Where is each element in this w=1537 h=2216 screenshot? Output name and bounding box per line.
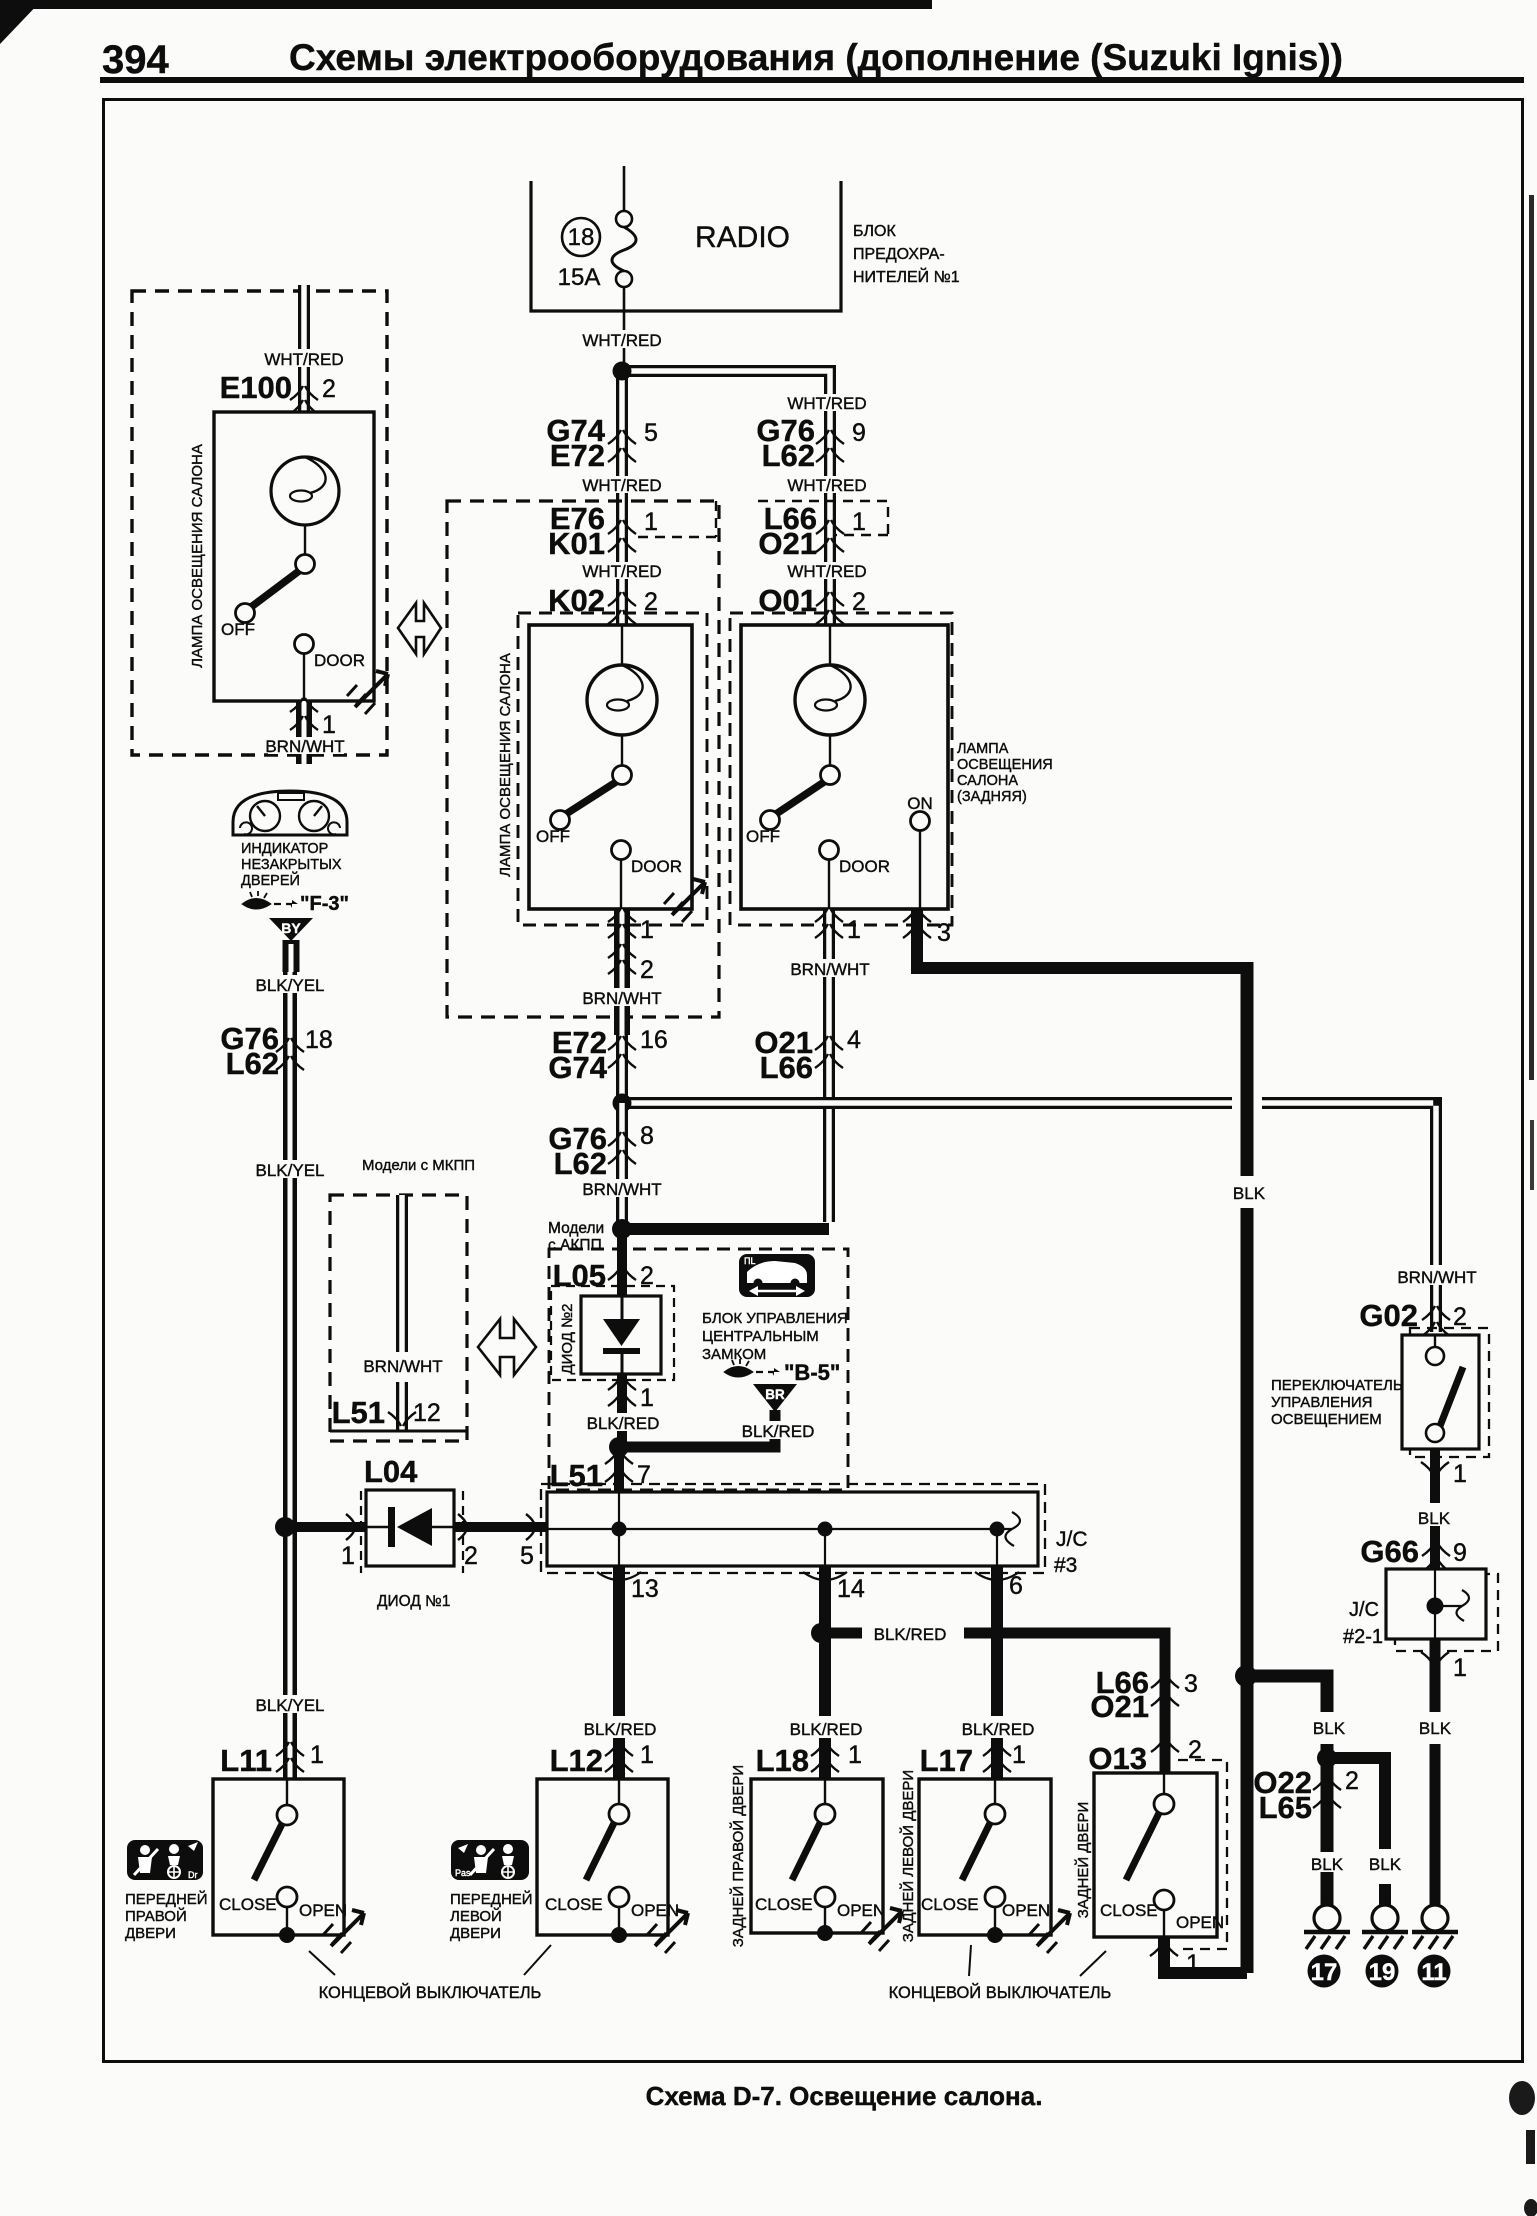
svg-text:1: 1 <box>1012 1741 1026 1769</box>
svg-text:1: 1 <box>644 508 658 536</box>
svg-text:BLK: BLK <box>1369 1855 1402 1874</box>
svg-text:Pas: Pas <box>455 1868 471 1878</box>
svg-text:DOOR: DOOR <box>631 857 682 876</box>
svg-text:ЛАМПА ОСВЕЩЕНИЯ САЛОНА: ЛАМПА ОСВЕЩЕНИЯ САЛОНА <box>497 653 514 877</box>
svg-text:L51: L51 <box>550 1458 603 1493</box>
svg-text:L62: L62 <box>554 1146 607 1181</box>
svg-text:L66: L66 <box>760 1050 813 1085</box>
svg-text:16: 16 <box>640 1026 668 1054</box>
svg-text:НЕЗАКРЫТЫХ: НЕЗАКРЫТЫХ <box>241 857 342 873</box>
svg-text:BRN/WHT: BRN/WHT <box>1397 1268 1476 1287</box>
svg-text:OPEN: OPEN <box>1002 1901 1050 1920</box>
svg-text:ДВЕРИ: ДВЕРИ <box>125 1925 176 1942</box>
svg-text:BY: BY <box>281 920 301 936</box>
svg-text:L65: L65 <box>1259 1790 1312 1825</box>
svg-text:18: 18 <box>568 224 595 251</box>
svg-text:1: 1 <box>310 1741 324 1769</box>
svg-text:2: 2 <box>1345 1767 1359 1795</box>
svg-text:ПРАВОЙ: ПРАВОЙ <box>125 1907 187 1925</box>
svg-text:CLOSE: CLOSE <box>921 1895 979 1914</box>
svg-text:#2-1: #2-1 <box>1343 1626 1383 1648</box>
svg-text:КОНЦЕВОЙ ВЫКЛЮЧАТЕЛЬ: КОНЦЕВОЙ ВЫКЛЮЧАТЕЛЬ <box>319 1983 542 2002</box>
svg-text:J/C: J/C <box>1349 1599 1379 1621</box>
svg-text:ЗАМКОМ: ЗАМКОМ <box>702 1346 766 1363</box>
svg-text:CLOSE: CLOSE <box>1100 1901 1158 1920</box>
svg-text:ЛЕВОЙ: ЛЕВОЙ <box>450 1907 502 1925</box>
svg-text:WHT/RED: WHT/RED <box>582 331 661 350</box>
svg-text:6: 6 <box>1009 1572 1023 1600</box>
svg-text:Модели: Модели <box>548 1220 604 1237</box>
svg-text:CLOSE: CLOSE <box>545 1895 603 1914</box>
svg-text:1: 1 <box>1186 1950 1200 1978</box>
svg-text:CLOSE: CLOSE <box>755 1895 813 1914</box>
svg-text:(ЗАДНЯЯ): (ЗАДНЯЯ) <box>957 789 1027 805</box>
svg-text:BRN/WHT: BRN/WHT <box>363 1357 442 1376</box>
svg-text:Схемы электрооборудования (доп: Схемы электрооборудования (дополнение (S… <box>289 37 1343 78</box>
svg-text:11: 11 <box>1421 1959 1446 1986</box>
svg-text:BLK/YEL: BLK/YEL <box>256 1696 325 1715</box>
svg-text:L11: L11 <box>220 1743 272 1778</box>
svg-text:O21: O21 <box>1090 1689 1149 1724</box>
svg-text:1: 1 <box>1453 1654 1467 1682</box>
svg-text:K01: K01 <box>548 526 605 561</box>
svg-text:ЦЕНТРАЛЬНЫМ: ЦЕНТРАЛЬНЫМ <box>702 1328 819 1345</box>
svg-text:ЗАДНЕЙ ЛЕВОЙ ДВЕРИ: ЗАДНЕЙ ЛЕВОЙ ДВЕРИ <box>899 1770 917 1942</box>
svg-text:ДИОД №1: ДИОД №1 <box>377 1593 450 1610</box>
svg-text:УПРАВЛЕНИЯ: УПРАВЛЕНИЯ <box>1271 1394 1372 1411</box>
svg-text:Схема D-7. Освещение салона.: Схема D-7. Освещение салона. <box>646 2081 1043 2111</box>
svg-text:"В-5": "В-5" <box>784 1360 840 1385</box>
svg-text:K02: K02 <box>548 583 605 618</box>
svg-text:ОСВЕЩЕНИЯ: ОСВЕЩЕНИЯ <box>957 757 1053 773</box>
svg-text:O21: O21 <box>758 526 817 561</box>
svg-text:1: 1 <box>640 1384 654 1412</box>
svg-text:12: 12 <box>413 1399 441 1427</box>
svg-text:2: 2 <box>1453 1303 1467 1331</box>
svg-text:BLK: BLK <box>1311 1855 1344 1874</box>
svg-text:L12: L12 <box>550 1743 603 1778</box>
svg-text:ЗАДНЕЙ ПРАВОЙ ДВЕРИ: ЗАДНЕЙ ПРАВОЙ ДВЕРИ <box>729 1765 747 1947</box>
svg-text:1: 1 <box>848 1741 862 1769</box>
svg-text:G74: G74 <box>548 1050 607 1085</box>
svg-text:1: 1 <box>640 1741 654 1769</box>
svg-text:394: 394 <box>102 38 169 82</box>
svg-text:O13: O13 <box>1088 1741 1147 1776</box>
svg-text:5: 5 <box>520 1542 534 1570</box>
svg-text:НИТЕЛЕЙ №1: НИТЕЛЕЙ №1 <box>853 267 960 286</box>
svg-text:ДВЕРЕЙ: ДВЕРЕЙ <box>241 871 300 889</box>
svg-text:2: 2 <box>640 956 654 984</box>
svg-text:2: 2 <box>464 1542 478 1570</box>
svg-text:5: 5 <box>644 419 658 447</box>
svg-text:BLK/RED: BLK/RED <box>587 1414 660 1433</box>
svg-text:3: 3 <box>937 919 951 947</box>
svg-text:BLK: BLK <box>1313 1719 1346 1738</box>
svg-text:Модели с МКПП: Модели с МКПП <box>362 1157 475 1174</box>
svg-text:1: 1 <box>322 711 336 739</box>
svg-text:OPEN: OPEN <box>631 1901 679 1920</box>
svg-text:18: 18 <box>305 1026 333 1054</box>
svg-text:#3: #3 <box>1054 1554 1077 1577</box>
svg-text:BLK/YEL: BLK/YEL <box>256 1161 325 1180</box>
svg-text:L51: L51 <box>332 1395 385 1430</box>
svg-text:DOOR: DOOR <box>839 857 890 876</box>
svg-text:1: 1 <box>1453 1460 1467 1488</box>
svg-text:G66: G66 <box>1360 1534 1419 1569</box>
svg-text:L04: L04 <box>364 1454 418 1489</box>
svg-text:1: 1 <box>640 916 654 944</box>
svg-text:E72: E72 <box>550 438 605 473</box>
svg-text:9: 9 <box>1453 1539 1467 1567</box>
svg-text:13: 13 <box>631 1575 659 1603</box>
svg-text:BLK/RED: BLK/RED <box>874 1625 947 1644</box>
svg-text:O01: O01 <box>758 583 817 618</box>
svg-text:BLK/YEL: BLK/YEL <box>256 976 325 995</box>
svg-text:L62: L62 <box>226 1046 279 1081</box>
svg-text:"F-3": "F-3" <box>300 893 349 915</box>
svg-text:CLOSE: CLOSE <box>219 1895 277 1914</box>
svg-text:1: 1 <box>341 1542 355 1570</box>
svg-text:ПРЕДОХРА-: ПРЕДОХРА- <box>853 246 945 263</box>
svg-text:BRN/WHT: BRN/WHT <box>265 737 344 756</box>
svg-text:L62: L62 <box>762 438 815 473</box>
svg-text:BLK: BLK <box>1419 1719 1452 1738</box>
svg-text:L17: L17 <box>920 1743 973 1778</box>
svg-text:WHT/RED: WHT/RED <box>582 476 661 495</box>
svg-text:БЛОК: БЛОК <box>853 223 896 240</box>
svg-text:ЛАМПА ОСВЕЩЕНИЯ САЛОНА: ЛАМПА ОСВЕЩЕНИЯ САЛОНА <box>189 444 206 668</box>
svg-text:КОНЦЕВОЙ ВЫКЛЮЧАТЕЛЬ: КОНЦЕВОЙ ВЫКЛЮЧАТЕЛЬ <box>889 1983 1112 2002</box>
svg-text:ПЕРЕДНЕЙ: ПЕРЕДНЕЙ <box>125 1890 208 1908</box>
svg-text:ПL: ПL <box>744 1256 755 1266</box>
svg-text:OPEN: OPEN <box>1176 1913 1224 1932</box>
svg-text:8: 8 <box>640 1122 654 1150</box>
svg-text:ПЕРЕКЛЮЧАТЕЛЬ: ПЕРЕКЛЮЧАТЕЛЬ <box>1271 1377 1403 1394</box>
svg-text:ЗАДНЕЙ ДВЕРИ: ЗАДНЕЙ ДВЕРИ <box>1074 1802 1092 1918</box>
svg-text:14: 14 <box>837 1575 865 1603</box>
svg-text:17: 17 <box>1311 1959 1338 1986</box>
svg-text:БЛОК УПРАВЛЕНИЯ: БЛОК УПРАВЛЕНИЯ <box>702 1310 848 1327</box>
svg-text:J/C: J/C <box>1056 1528 1088 1551</box>
svg-text:BLK/RED: BLK/RED <box>584 1720 657 1739</box>
svg-text:4: 4 <box>847 1026 861 1054</box>
svg-text:E100: E100 <box>220 370 292 405</box>
svg-text:ЛАМПА: ЛАМПА <box>957 741 1009 757</box>
svg-text:OPEN: OPEN <box>299 1901 347 1920</box>
svg-text:1: 1 <box>847 916 861 944</box>
svg-text:ДВЕРИ: ДВЕРИ <box>450 1925 501 1942</box>
svg-text:OFF: OFF <box>746 827 780 846</box>
svg-text:OFF: OFF <box>536 827 570 846</box>
svg-text:BRN/WHT: BRN/WHT <box>790 960 869 979</box>
svg-text:BLK/RED: BLK/RED <box>790 1720 863 1739</box>
svg-text:ДИОД №2: ДИОД №2 <box>559 1303 576 1374</box>
svg-text:RADIO: RADIO <box>695 221 790 254</box>
svg-text:WHT/RED: WHT/RED <box>582 562 661 581</box>
svg-text:1: 1 <box>852 508 866 536</box>
svg-text:DOOR: DOOR <box>314 651 365 670</box>
svg-text:WHT/RED: WHT/RED <box>787 562 866 581</box>
svg-text:ИНДИКАТОР: ИНДИКАТОР <box>241 841 328 857</box>
svg-text:19: 19 <box>1369 1959 1396 1986</box>
svg-text:OFF: OFF <box>221 620 255 639</box>
svg-text:САЛОНА: САЛОНА <box>957 773 1018 789</box>
svg-text:15A: 15A <box>558 264 601 291</box>
svg-text:L18: L18 <box>756 1743 809 1778</box>
svg-text:2: 2 <box>322 375 336 403</box>
svg-text:Dr: Dr <box>188 1870 198 1880</box>
svg-text:ОСВЕЩЕНИЕМ: ОСВЕЩЕНИЕМ <box>1271 1411 1382 1428</box>
svg-text:BRN/WHT: BRN/WHT <box>582 989 661 1008</box>
svg-text:с АКПП: с АКПП <box>548 1237 602 1254</box>
svg-text:ПЕРЕДНЕЙ: ПЕРЕДНЕЙ <box>450 1890 533 1908</box>
svg-text:3: 3 <box>1184 1670 1198 1698</box>
svg-text:L05: L05 <box>553 1258 606 1293</box>
svg-text:BLK: BLK <box>1233 1184 1266 1203</box>
svg-text:WHT/RED: WHT/RED <box>264 350 343 369</box>
svg-text:BLK/RED: BLK/RED <box>962 1720 1035 1739</box>
svg-text:BRN/WHT: BRN/WHT <box>582 1180 661 1199</box>
svg-text:WHT/RED: WHT/RED <box>787 394 866 413</box>
svg-text:BR: BR <box>765 1387 785 1402</box>
svg-text:9: 9 <box>852 419 866 447</box>
svg-text:WHT/RED: WHT/RED <box>787 476 866 495</box>
svg-text:BLK/RED: BLK/RED <box>742 1422 815 1441</box>
svg-text:OPEN: OPEN <box>837 1901 885 1920</box>
svg-text:BLK: BLK <box>1418 1509 1451 1528</box>
